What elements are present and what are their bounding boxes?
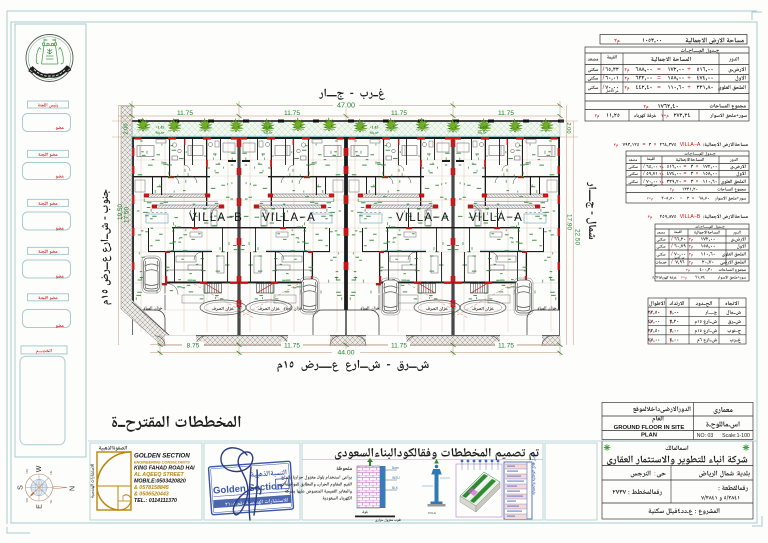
svg-text:=: =	[684, 179, 687, 185]
svg-text:11.75: 11.75	[391, 343, 407, 350]
svg-text:م: م	[650, 310, 653, 315]
svg-text:×: ×	[696, 171, 699, 177]
svg-text:44.00: 44.00	[337, 349, 354, 356]
svg-text:Bwm: Bwm	[392, 466, 399, 470]
svg-text:=: =	[680, 196, 683, 201]
svg-text:NW: NW	[25, 468, 29, 473]
svg-text:MOBILE:0503420820: MOBILE:0503420820	[134, 479, 186, 485]
svg-text:S: S	[18, 485, 25, 490]
svg-text:PLAN: PLAN	[641, 433, 657, 439]
svg-text:=: =	[643, 142, 646, 148]
svg-text:& 0506520443: & 0506520443	[134, 492, 169, 498]
svg-text:POLE: POLE	[428, 511, 436, 515]
svg-text:=: =	[657, 67, 661, 73]
svg-text:م: م	[650, 337, 653, 342]
svg-text:GROUND FLOOR IN SITE: GROUND FLOOR IN SITE	[614, 425, 685, 431]
svg-text:2.00: 2.00	[124, 123, 130, 134]
svg-text:م: م	[670, 328, 673, 333]
svg-text:BLK: BLK	[392, 486, 399, 490]
svg-text:NE: NE	[49, 470, 53, 474]
svg-text:NO: 03: NO: 03	[697, 433, 714, 439]
svg-text:11.75: 11.75	[284, 343, 300, 350]
svg-text:11.75: 11.75	[284, 110, 300, 117]
svg-text:11.75: 11.75	[498, 343, 514, 350]
svg-text:Scale:1-100: Scale:1-100	[722, 433, 750, 439]
svg-text:×: ×	[692, 196, 695, 201]
svg-text:=: =	[684, 171, 687, 177]
svg-text:SE: SE	[49, 500, 53, 504]
svg-text:×: ×	[696, 164, 699, 170]
svg-text:VILLA−A: VILLA−A	[469, 212, 523, 224]
svg-text:VILLA−A: VILLA−A	[680, 142, 701, 148]
svg-text:VILLA−B: VILLA−B	[680, 214, 701, 220]
svg-text:=: =	[657, 76, 661, 82]
svg-text:17.50: 17.50	[124, 207, 131, 223]
svg-text:TEL.: 0114111370: TEL.: 0114111370	[134, 498, 177, 504]
svg-text:GOLDEN SECTION: GOLDEN SECTION	[134, 453, 190, 460]
svg-text:47.00: 47.00	[337, 101, 355, 110]
svg-text:م: م	[670, 337, 673, 342]
svg-text:AL AQEEQ STREET: AL AQEEQ STREET	[133, 472, 185, 478]
svg-text:م: م	[670, 319, 673, 324]
svg-text:VILLA−A: VILLA−A	[396, 212, 450, 224]
svg-text:VILLA−B: VILLA−B	[189, 212, 243, 224]
svg-text:22.50: 22.50	[574, 229, 581, 245]
svg-text:م: م	[650, 319, 653, 324]
svg-text:ENGINEERING CONSULTANTS: ENGINEERING CONSULTANTS	[134, 461, 190, 465]
svg-text:2.00: 2.00	[565, 122, 571, 133]
svg-text:11.75: 11.75	[498, 110, 514, 117]
svg-text:17.90: 17.90	[566, 214, 573, 230]
svg-text:N: N	[70, 486, 77, 491]
svg-text:SW: SW	[25, 498, 29, 503]
svg-text:W: W	[36, 465, 43, 472]
svg-text:×: ×	[696, 179, 699, 185]
svg-text:8.75: 8.75	[187, 343, 200, 350]
svg-text:م: م	[650, 328, 653, 333]
svg-text:11.75: 11.75	[177, 110, 193, 117]
svg-text:=: =	[657, 85, 661, 91]
svg-text:+: +	[687, 76, 691, 82]
svg-text:م: م	[670, 310, 673, 315]
svg-text:×: ×	[654, 142, 657, 148]
svg-text:KING FAHAD ROAD HAI: KING FAHAD ROAD HAI	[134, 466, 195, 472]
svg-text:+: +	[687, 67, 691, 73]
svg-text:+: +	[687, 85, 691, 91]
svg-text:INSU: INSU	[392, 476, 400, 480]
svg-text:E: E	[37, 504, 44, 509]
svg-text:=: =	[684, 164, 687, 170]
svg-text:& 0578158845: & 0578158845	[134, 485, 170, 491]
svg-text:11.75: 11.75	[391, 110, 407, 117]
svg-text:VILLA−A: VILLA−A	[262, 212, 316, 224]
